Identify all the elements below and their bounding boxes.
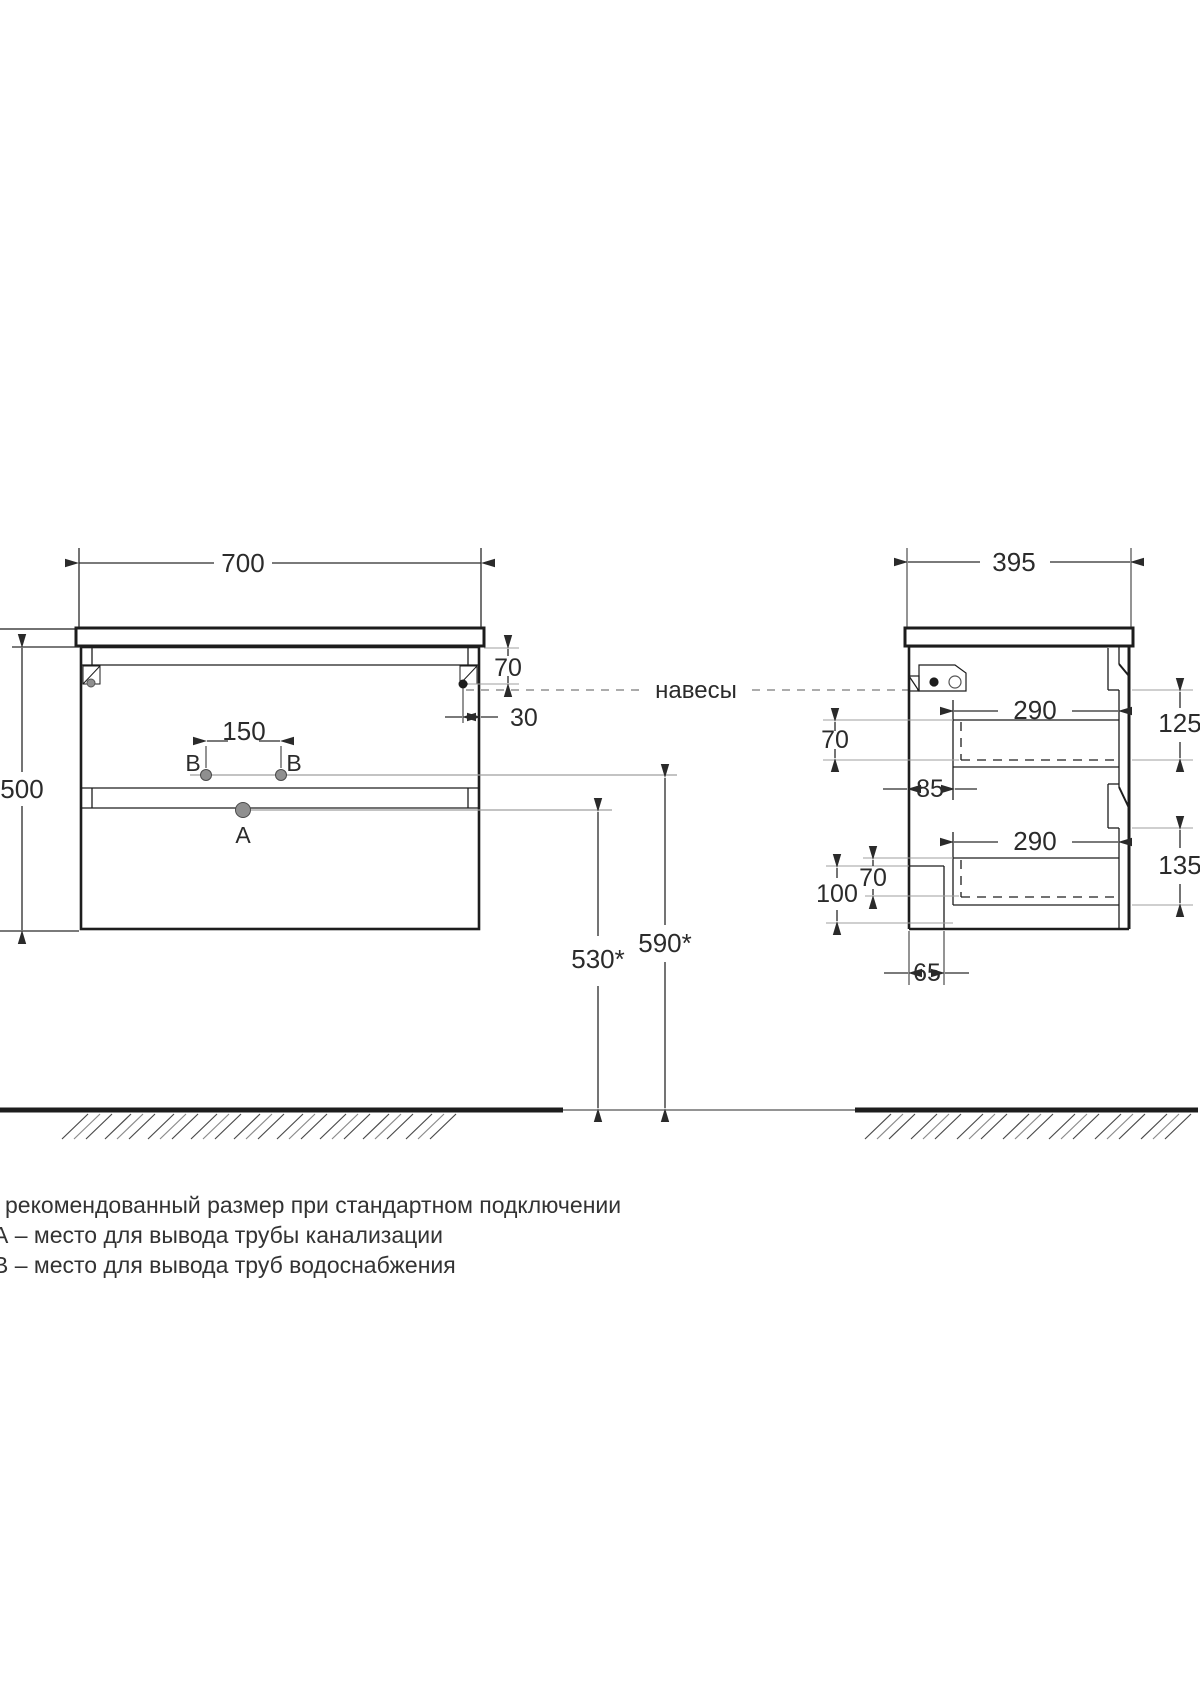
dim-bottom-front-panel: 135	[1158, 850, 1200, 880]
floor-hatch-stroke	[981, 1114, 1007, 1139]
dim-water-height: 590*	[638, 928, 692, 958]
floor-hatching-right	[865, 1114, 1191, 1139]
floor-hatch-stroke	[332, 1114, 358, 1139]
legend-line-drain: А – место для вывода трубы канализации	[0, 1222, 443, 1248]
floor-hatch-stroke	[62, 1114, 88, 1139]
floor-hatch-stroke	[289, 1114, 315, 1139]
floor	[0, 1110, 1198, 1139]
floor-hatch-stroke	[1073, 1114, 1099, 1139]
legend: рекомендованный размер при стандартном п…	[0, 1192, 621, 1278]
front-countertop	[76, 628, 484, 646]
handle-notch-bottom	[1108, 784, 1129, 828]
vanity-installation-diagram: 700 500 150 70 30 530* 590* В В А навесы	[0, 0, 1200, 1697]
front-dimensions	[0, 548, 665, 1108]
label-water-left: В	[185, 750, 200, 776]
floor-hatch-stroke	[203, 1114, 229, 1139]
floor-hatching-left	[62, 1114, 456, 1139]
floor-hatch-stroke	[1015, 1114, 1041, 1139]
dim-plinth-height: 100	[816, 880, 858, 908]
legend-line-water: В – место для вывода труб водоснабжения	[0, 1252, 456, 1278]
floor-hatch-stroke	[1095, 1114, 1121, 1139]
dim-bottom-drawer-depth: 290	[1013, 826, 1056, 856]
floor-hatch-stroke	[969, 1114, 995, 1139]
dim-front-width: 700	[221, 548, 264, 578]
floor-hatch-stroke	[889, 1114, 915, 1139]
hanger-bracket-left	[83, 666, 100, 687]
floor-hatch-stroke	[923, 1114, 949, 1139]
floor-hatch-stroke	[160, 1114, 186, 1139]
floor-hatch-stroke	[1107, 1114, 1133, 1139]
floor-hatch-stroke	[1153, 1114, 1179, 1139]
floor-hatch-stroke	[1141, 1114, 1167, 1139]
floor-hatch-stroke	[1003, 1114, 1029, 1139]
drain-point	[236, 803, 251, 818]
dim-drain-height: 530*	[571, 944, 625, 974]
legend-line-recommended: рекомендованный размер при стандартном п…	[5, 1192, 621, 1218]
hangers-label: навесы	[655, 677, 737, 704]
water-point-right	[276, 770, 287, 781]
dim-hanger-drop: 70	[494, 654, 522, 682]
floor-hatch-stroke	[957, 1114, 983, 1139]
dim-wall-clearance: 85	[916, 775, 944, 803]
installation-drawing-page: 700 500 150 70 30 530* 590* В В А навесы	[0, 0, 1200, 1697]
floor-hatch-stroke	[418, 1114, 444, 1139]
side-hanger-bracket	[909, 665, 966, 691]
floor-hatch-stroke	[935, 1114, 961, 1139]
dim-top-drawer-depth: 290	[1013, 695, 1056, 725]
floor-hatch-stroke	[430, 1114, 456, 1139]
floor-hatch-stroke	[865, 1114, 891, 1139]
floor-hatch-stroke	[1049, 1114, 1075, 1139]
floor-hatch-stroke	[1119, 1114, 1145, 1139]
water-point-left	[201, 770, 212, 781]
floor-hatch-stroke	[1061, 1114, 1087, 1139]
floor-hatch-stroke	[1027, 1114, 1053, 1139]
floor-hatch-stroke	[246, 1114, 272, 1139]
side-countertop	[905, 628, 1133, 646]
label-water-right: В	[286, 750, 301, 776]
front-view	[0, 628, 677, 929]
plinth-recess	[909, 866, 944, 929]
hanger-bracket-right	[459, 666, 477, 688]
dim-top-front-panel: 125	[1158, 708, 1200, 738]
dim-front-height: 500	[0, 774, 43, 804]
dim-pipe-spacing: 150	[222, 716, 265, 746]
floor-hatch-stroke	[74, 1114, 100, 1139]
dim-hanger-inset: 30	[510, 704, 538, 732]
floor-hatch-stroke	[375, 1114, 401, 1139]
floor-hatch-stroke	[911, 1114, 937, 1139]
label-drain: А	[235, 822, 251, 848]
dim-plinth-recess: 65	[913, 959, 941, 987]
floor-hatch-stroke	[117, 1114, 143, 1139]
dim-side-depth: 395	[992, 547, 1035, 577]
floor-hatch-stroke	[877, 1114, 903, 1139]
dim-top-drawer-height: 70	[821, 726, 849, 754]
dim-bottom-drawer-height: 70	[859, 864, 887, 892]
floor-hatch-stroke	[1165, 1114, 1191, 1139]
